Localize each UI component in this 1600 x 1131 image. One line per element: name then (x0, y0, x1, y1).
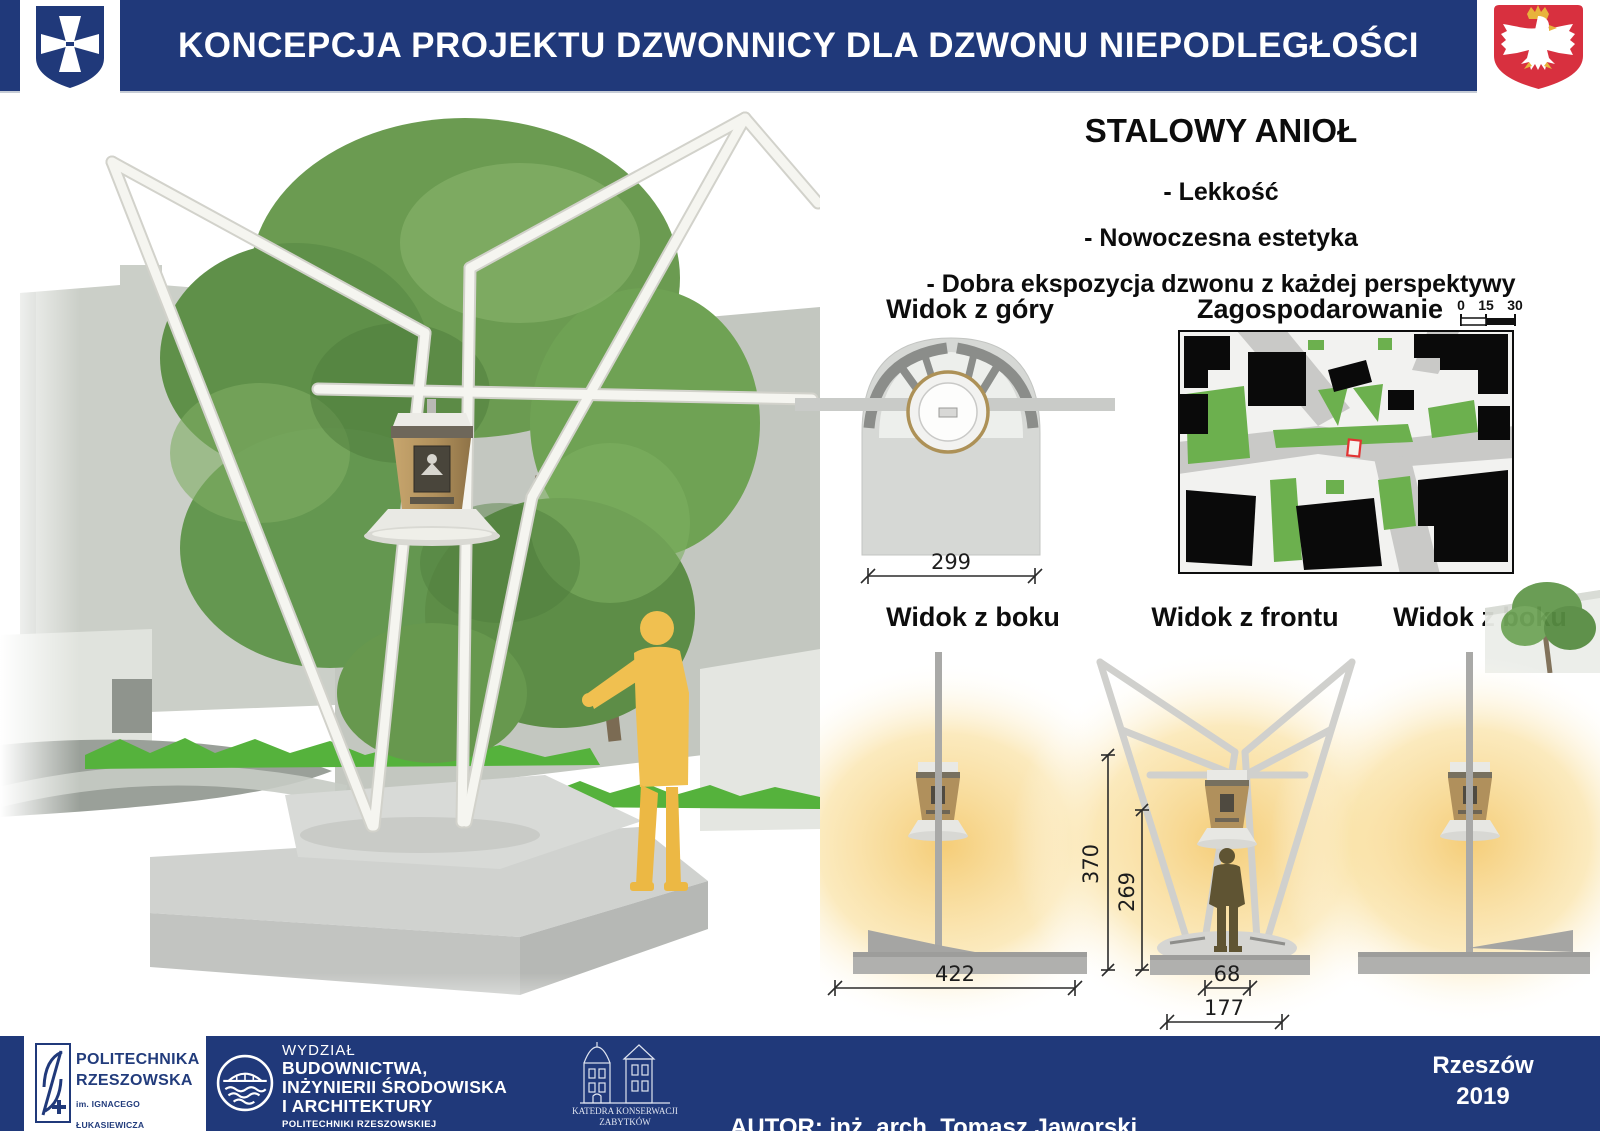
concept-bullet: - Nowoczesna estetyka (842, 224, 1600, 253)
dimension-label: 177 (1204, 996, 1244, 1020)
svg-text:15: 15 (1478, 297, 1494, 313)
faculty-line5: POLITECHNIKI RZESZOWSKIEJ (282, 1119, 507, 1130)
university-name-line2: RZESZOWSKA (76, 1070, 206, 1091)
author-line: AUTOR: inż. arch. Tomasz Jaworski (730, 1112, 1314, 1131)
credits: AUTOR: inż. arch. Tomasz Jaworski PROMOT… (730, 1050, 1314, 1131)
map-scale-bar: 0 15 30 (1448, 296, 1528, 334)
university-name-line3: im. IGNACEGO ŁUKASIEWICZA (76, 1094, 206, 1131)
faculty-name: WYDZIAŁ BUDOWNICTWA, INŻYNIERII ŚRODOWIS… (282, 1042, 507, 1130)
top-view-label: Widok z góry (850, 294, 1090, 325)
faculty-logo-icon (216, 1054, 274, 1112)
top-view-drawing: 299 (795, 328, 1115, 590)
dimension-label: 299 (931, 550, 971, 574)
header-bar: KONCEPCJA PROJEKTU DZWONNICY DLA DZWONU … (0, 0, 1600, 93)
faculty-line4: I ARCHITEKTURY (282, 1097, 507, 1116)
faculty-line2: BUDOWNICTWA, (282, 1059, 507, 1078)
department-line2: ZABYTKÓW (560, 1117, 690, 1128)
side-view-left-label: Widok z boku (853, 602, 1093, 633)
dimension-label: 370 (1079, 844, 1103, 884)
svg-text:30: 30 (1507, 297, 1523, 313)
footer-bar: POLITECHNIKA RZESZOWSKA im. IGNACEGO ŁUK… (0, 1036, 1600, 1131)
place-year: Rzeszów 2019 (1398, 1050, 1568, 1112)
department-name: KATEDRA KONSERWACJI ZABYTKÓW (560, 1106, 690, 1128)
site-plan-label: Zagospodarowanie (1170, 294, 1470, 325)
concept-bullet: - Lekkość (842, 178, 1600, 207)
dimension-label: 269 (1115, 872, 1139, 912)
rzeszow-crest-icon (20, 0, 120, 93)
university-name-line1: POLITECHNIKA (76, 1049, 206, 1070)
university-logo-block: POLITECHNIKA RZESZOWSKA im. IGNACEGO ŁUK… (24, 1036, 206, 1131)
elevation-drawings: 422 370 269 68 177 (820, 640, 1600, 1030)
pedestal (150, 775, 708, 995)
faculty-line1: WYDZIAŁ (282, 1042, 507, 1059)
poland-eagle-icon (1477, 0, 1600, 93)
city-label: Rzeszów (1398, 1050, 1568, 1081)
dimension-label: 422 (935, 962, 975, 986)
year-label: 2019 (1398, 1081, 1568, 1112)
dimension-label: 68 (1214, 962, 1241, 986)
page-title: KONCEPCJA PROJEKTU DZWONNICY DLA DZWONU … (130, 0, 1467, 91)
render-perspective-view (0, 93, 820, 1035)
site-plan-map (1178, 330, 1514, 574)
front-view-label: Widok z frontu (1125, 602, 1365, 633)
department-line1: KATEDRA KONSERWACJI (560, 1106, 690, 1117)
politechnika-logo-icon (35, 1043, 71, 1123)
svg-text:0: 0 (1457, 297, 1465, 313)
map-site-marker (1347, 439, 1361, 456)
university-name: POLITECHNIKA RZESZOWSKA im. IGNACEGO ŁUK… (76, 1049, 206, 1131)
department-logo-icon (580, 1041, 670, 1105)
faculty-line3: INŻYNIERII ŚRODOWISKA (282, 1078, 507, 1097)
presentation-board: KONCEPCJA PROJEKTU DZWONNICY DLA DZWONU … (0, 0, 1600, 1131)
concept-title: STALOWY ANIOŁ (842, 112, 1600, 150)
